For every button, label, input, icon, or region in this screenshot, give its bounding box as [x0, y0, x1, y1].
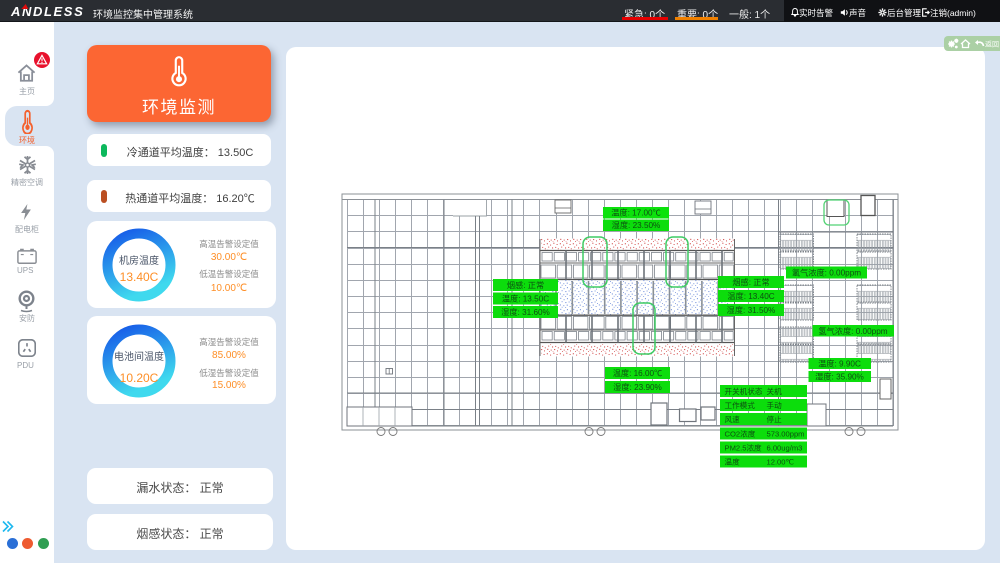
svg-text:烟感: 正常: 烟感: 正常 — [732, 277, 769, 287]
svg-text:开关机状态: 开关机状态 — [725, 386, 763, 396]
svg-text:温度: 17.00℃: 温度: 17.00℃ — [611, 208, 661, 218]
svg-text:温度: 温度 — [725, 456, 741, 466]
svg-text:温度: 16.00℃: 温度: 16.00℃ — [613, 368, 663, 378]
svg-text:关机: 关机 — [767, 386, 783, 396]
svg-text:湿度: 35.90%: 湿度: 35.90% — [815, 372, 864, 382]
svg-text:温度: 13.50C: 温度: 13.50C — [502, 293, 549, 303]
svg-text:6.00ug/m3: 6.00ug/m3 — [767, 443, 803, 452]
svg-text:停止: 停止 — [767, 414, 783, 424]
svg-text:手动: 手动 — [767, 400, 783, 410]
svg-text:CO2浓度: CO2浓度 — [725, 428, 756, 438]
svg-text:温度: 9.90C: 温度: 9.90C — [818, 359, 861, 369]
svg-text:温度: 13.40C: 温度: 13.40C — [727, 291, 774, 301]
svg-text:12.00℃: 12.00℃ — [767, 457, 795, 466]
svg-text:湿度: 23.50%: 湿度: 23.50% — [612, 220, 661, 230]
svg-text:湿度: 31.60%: 湿度: 31.60% — [501, 307, 550, 317]
svg-text:湿度: 31.50%: 湿度: 31.50% — [727, 305, 776, 315]
svg-text:氢气浓度: 0.00ppm: 氢气浓度: 0.00ppm — [818, 326, 887, 336]
svg-text:PM2.5浓度: PM2.5浓度 — [725, 442, 763, 452]
svg-text:氢气浓度: 0.00ppm: 氢气浓度: 0.00ppm — [792, 267, 861, 277]
svg-text:烟感: 正常: 烟感: 正常 — [507, 280, 544, 290]
svg-text:风速: 风速 — [725, 415, 741, 424]
svg-text:湿度: 23.90%: 湿度: 23.90% — [613, 382, 662, 392]
svg-text:工作模式: 工作模式 — [725, 400, 756, 410]
svg-text:返回: 返回 — [985, 41, 999, 49]
svg-text:573.00ppm: 573.00ppm — [767, 429, 805, 438]
